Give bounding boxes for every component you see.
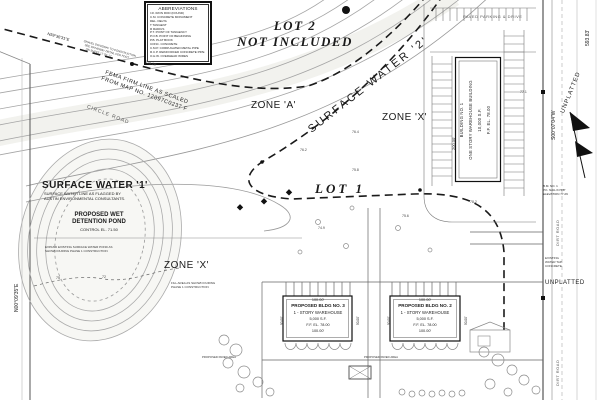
abbreviations-legend: ABBREVIATIONS I.R. IRON ROD (FOUND) C.M.…	[144, 1, 212, 65]
paved-parking-label: PAVED PARKING & DRIVE	[463, 15, 522, 20]
building3-dim-bottom: 100.00'	[284, 328, 352, 334]
benchmark-line3: ELEVATION 77.29	[543, 192, 568, 196]
abbreviations-legend-inner: ABBREVIATIONS I.R. IRON ROD (FOUND) C.M.…	[147, 4, 209, 62]
building1-line1: BUILDING NO. 1	[457, 61, 466, 179]
lot2-label: LOT 2 NOT INCLUDED	[230, 18, 360, 49]
legend-row: O.H.W. OVERHEAD WIRES	[150, 55, 206, 59]
building2-dim-left: 50.00'	[388, 316, 392, 325]
proposed-wet-line2: DETENTION POND	[68, 219, 130, 226]
lot2-line1: LOT 2	[230, 18, 360, 34]
water-tap-note-line3: CONCRETE	[545, 264, 562, 268]
unplatted-label-mid: UNPLATTED	[545, 280, 585, 287]
building1-line3: 10,000 S.F.	[475, 61, 484, 179]
east-distance-label: 593.83'	[585, 30, 591, 46]
building3-dim-right: 50.00'	[357, 316, 361, 325]
spot-elevation: 76.2	[300, 148, 307, 152]
dirt-road-label-1: DIRT ROAD	[556, 220, 561, 246]
east-bearing-label: S00°07'04"W	[551, 111, 557, 140]
building3-text: 100.00' PROPOSED BLDG NO. 3 1 - STORY WA…	[284, 297, 352, 334]
benchmark-note: B.M. NO. 1 P.K. NAIL IN 5/8" ELEVATION 7…	[543, 184, 568, 196]
building1-dimension: 200.00'	[452, 137, 457, 150]
surface-water-1-note2: AUSTIN ENVIRONMENTAL CONSULTANTS.	[44, 197, 125, 202]
spot-elevation: 75	[56, 276, 60, 280]
spot-elevation: 78.2	[470, 200, 477, 204]
paved-area-label-2: PROPOSED PAVED AREA	[364, 356, 398, 360]
building2-dim-right: 50.00'	[465, 316, 469, 325]
building2-text: 100.00' PROPOSED BLDG NO. 2 1 - STORY WA…	[391, 297, 459, 334]
building1-line2: ONE STORY WAREHOUSE BUILDING	[466, 61, 475, 179]
west-bearing-label: N00°09'35"E	[14, 284, 20, 312]
dirt-road-label-2: DIRT ROAD	[556, 360, 561, 386]
spot-elevation: 72	[102, 275, 106, 279]
building2-line1: PROPOSED BLDG NO. 2	[391, 303, 459, 310]
building3-dim-left: 50.00'	[281, 316, 285, 325]
tree-symbols	[219, 206, 540, 397]
control-elevation: CONTROL EL. 71.50	[68, 228, 130, 233]
building1-text: BUILDING NO. 1 ONE STORY WAREHOUSE BUILD…	[457, 61, 501, 179]
north-arrow-icon	[570, 112, 593, 178]
lot2-line2: NOT INCLUDED	[230, 34, 360, 50]
spot-elevation: 74.9	[318, 226, 325, 230]
pond-note-line2: SHOWN DURING PHASE 1 CONSTRUCTION	[45, 249, 108, 253]
building1-line4: F.F. EL. 78.00	[484, 61, 493, 179]
zone-x-left-label: ZONE 'X'	[164, 260, 209, 272]
zone-a-label: ZONE 'A'	[251, 100, 296, 112]
building3-line1: PROPOSED BLDG NO. 3	[284, 303, 352, 310]
spot-elevation: 75.6	[402, 214, 409, 218]
lot1-label: LOT 1	[315, 181, 365, 197]
fill-note-line2: PHASE 1 CONSTRUCTION	[171, 285, 209, 289]
spot-elevation: 76.4	[352, 130, 359, 134]
spot-elevation: 77.1	[520, 90, 527, 94]
site-plan-sheet: ABBREVIATIONS I.R. IRON ROD (FOUND) C.M.…	[0, 0, 600, 400]
building2-dim-bottom: 100.00'	[391, 328, 459, 334]
paved-area-label-1: PROPOSED PAVED AREA	[202, 356, 236, 360]
zone-x-right-label: ZONE 'X'	[382, 112, 427, 124]
spot-elevation: 75.8	[352, 168, 359, 172]
